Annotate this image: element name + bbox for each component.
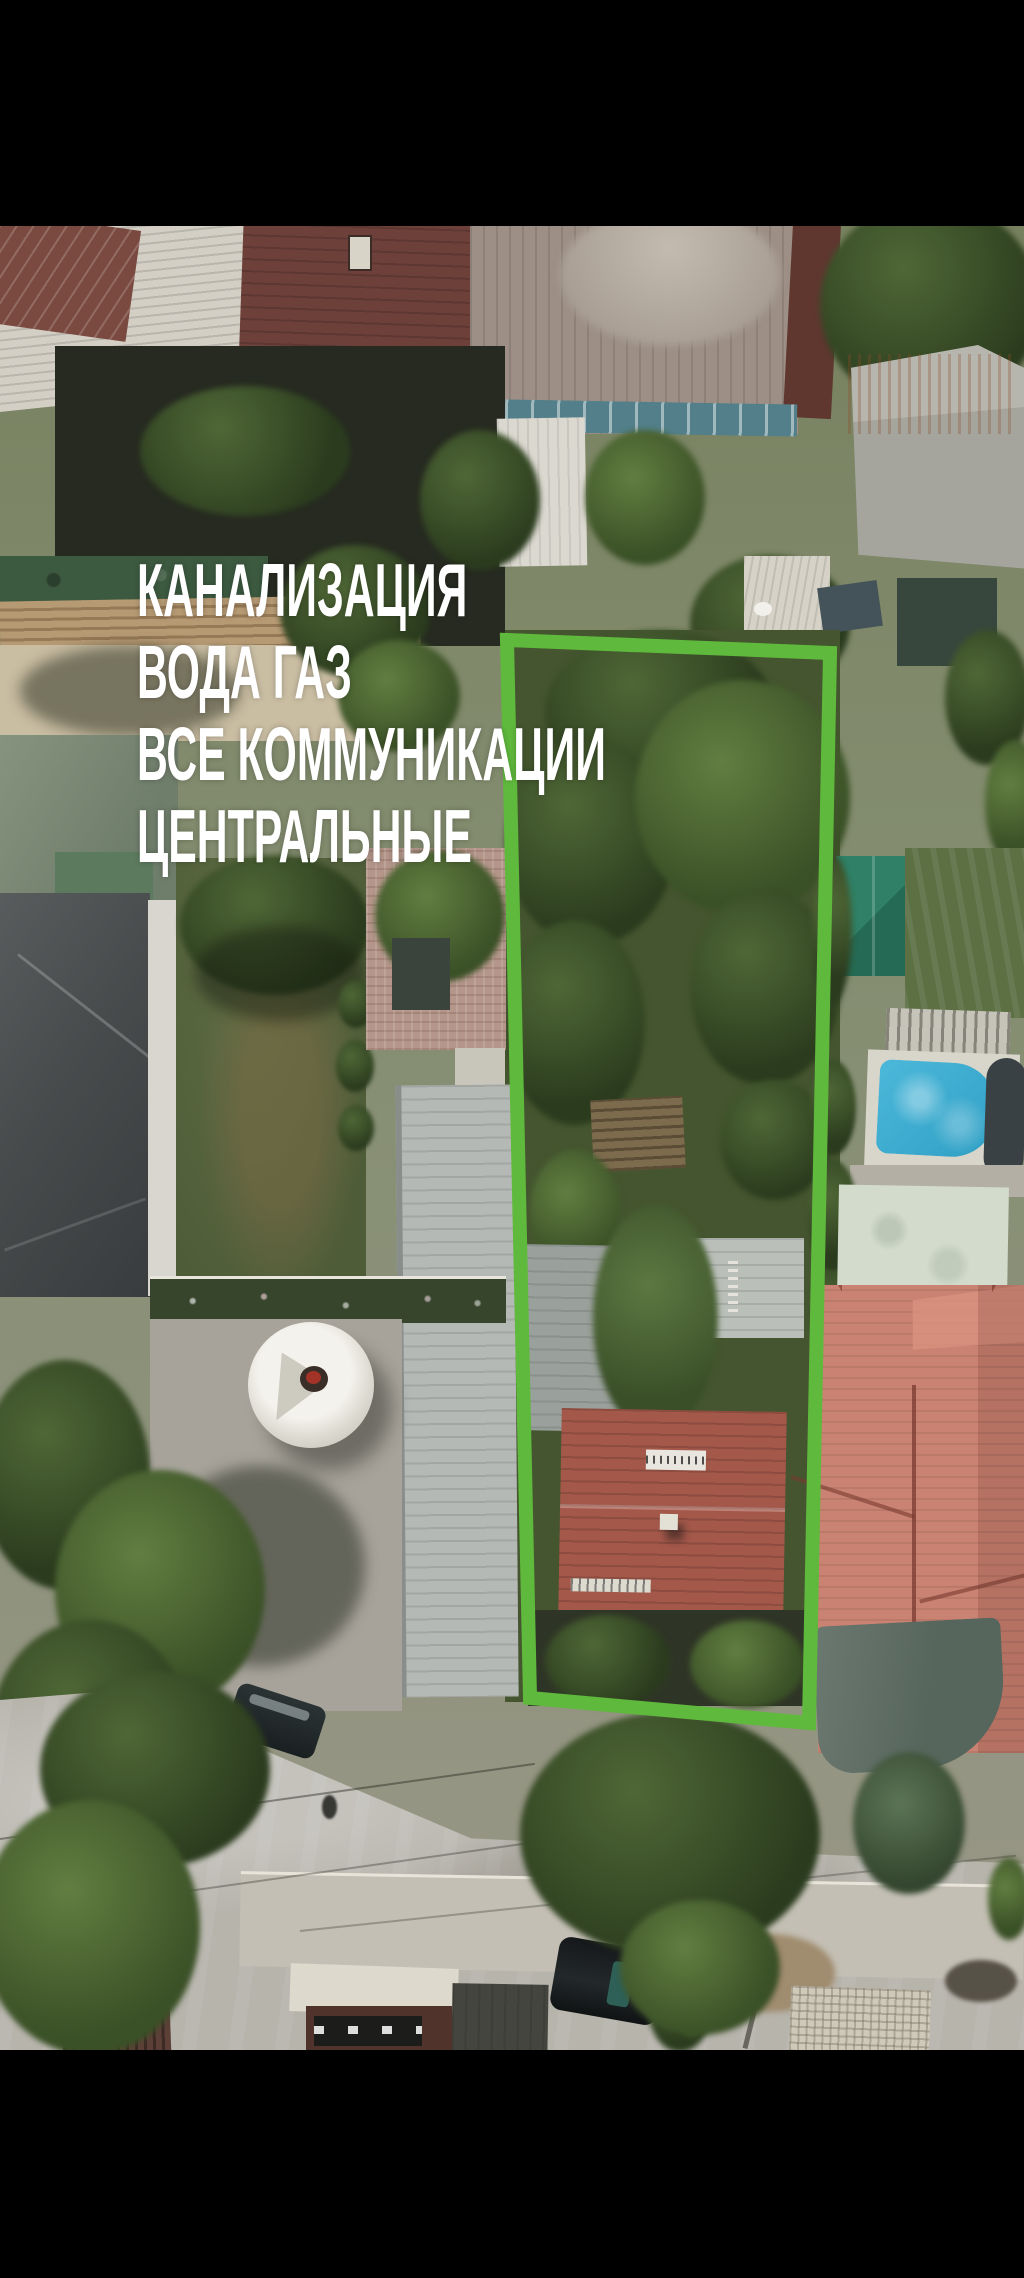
caption-overlay: КАНАЛИЗАЦИЯ ВОДА ГАЗ ВСЕ КОММУНИКАЦИИ ЦЕ…	[137, 549, 606, 877]
video-frame: КАНАЛИЗАЦИЯ ВОДА ГАЗ ВСЕ КОММУНИКАЦИИ ЦЕ…	[0, 0, 1024, 2278]
plot-boundary-outline	[0, 0, 1024, 2278]
caption-line-4: ЦЕНТРАЛЬНЫЕ	[137, 795, 606, 877]
top-letterbox-bar	[0, 0, 1024, 226]
bottom-letterbox-bar	[0, 2050, 1024, 2278]
caption-line-3: ВСЕ КОММУНИКАЦИИ	[137, 713, 606, 795]
caption-line-2: ВОДА ГАЗ	[137, 631, 606, 713]
caption-line-1: КАНАЛИЗАЦИЯ	[137, 549, 606, 631]
